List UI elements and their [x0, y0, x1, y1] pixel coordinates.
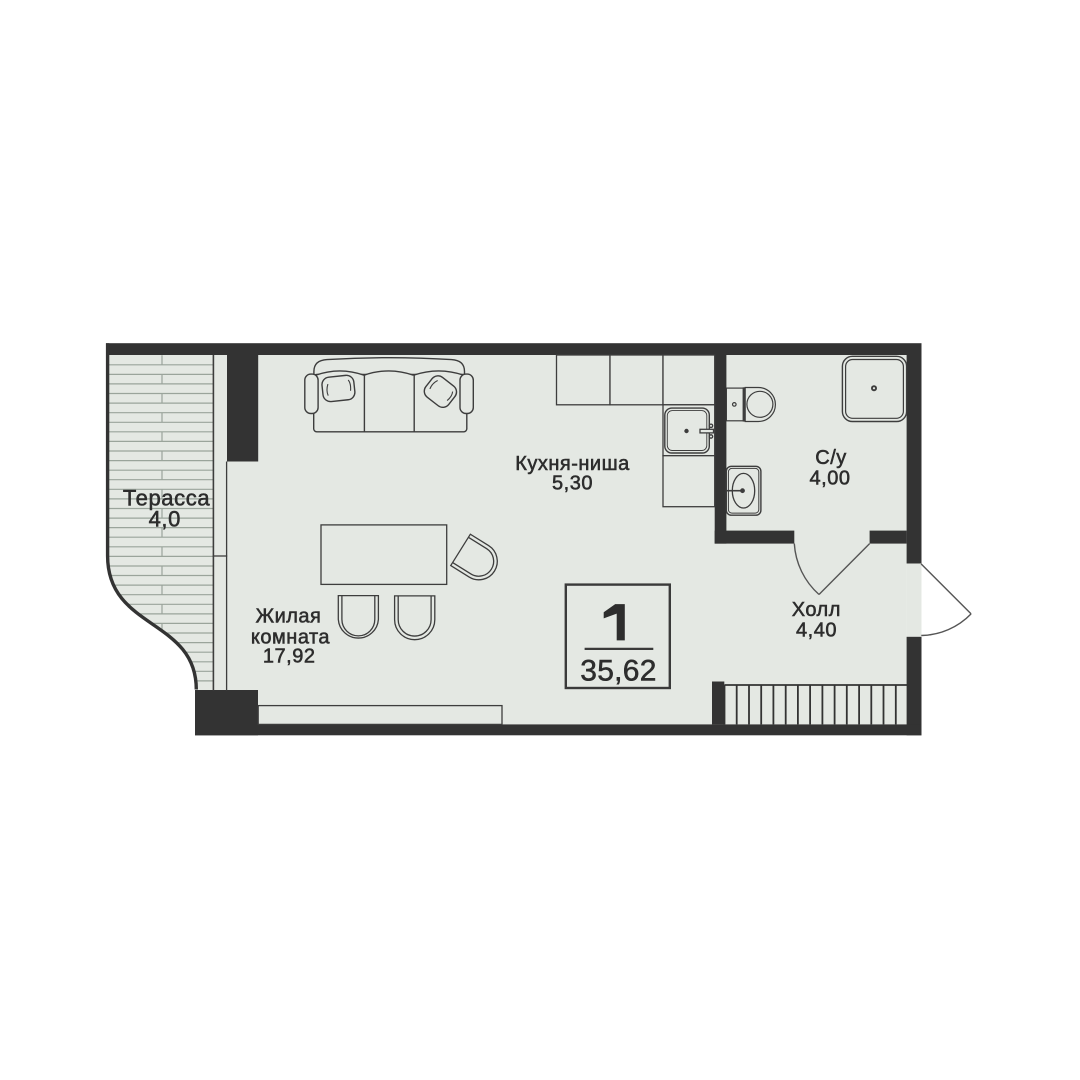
- svg-text:17,92: 17,92: [263, 646, 316, 668]
- svg-text:4,00: 4,00: [810, 468, 851, 490]
- svg-text:Холл: Холл: [792, 599, 841, 621]
- svg-text:Жилая: Жилая: [256, 606, 322, 628]
- svg-text:4,40: 4,40: [796, 620, 837, 642]
- svg-text:35,62: 35,62: [580, 655, 657, 688]
- svg-text:5,30: 5,30: [552, 473, 593, 495]
- svg-text:4,0: 4,0: [149, 507, 181, 532]
- svg-text:С/у: С/у: [815, 447, 847, 469]
